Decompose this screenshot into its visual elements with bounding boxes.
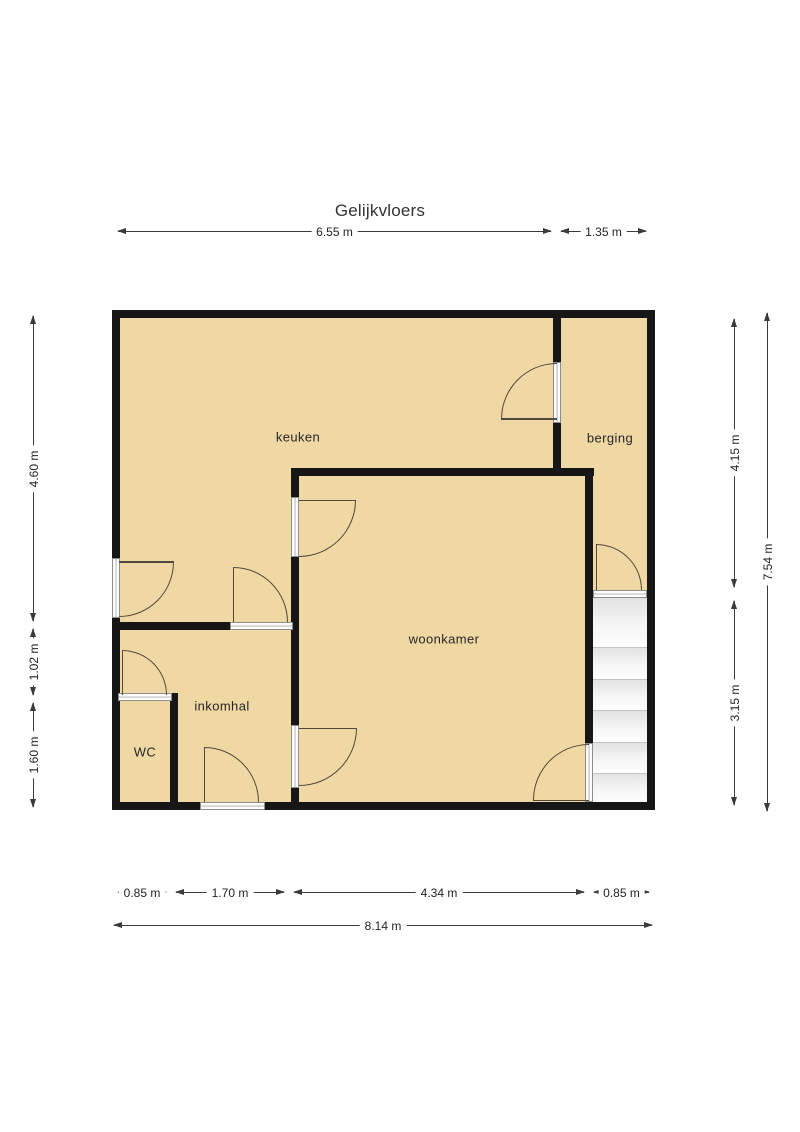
arrow-down-icon xyxy=(764,803,770,812)
dimension-label: 0.85 m xyxy=(598,886,645,900)
dimension-left-keuken: 4.60 m xyxy=(30,315,37,622)
stair-step xyxy=(593,773,647,802)
arrow-right-icon xyxy=(576,889,585,895)
arrow-left-icon xyxy=(293,889,302,895)
door-jamb-keuken-inkomhal xyxy=(230,622,293,630)
dimension-label: 6.55 m xyxy=(311,225,358,239)
arrow-down-icon xyxy=(30,613,36,622)
page-title: Gelijkvloers xyxy=(260,201,500,221)
wall-woonkamer-left-lower xyxy=(291,788,299,802)
arrow-up-icon xyxy=(30,702,36,711)
dimension-right-lower: 3.15 m xyxy=(731,600,738,806)
arrow-right-icon xyxy=(638,228,647,234)
arrow-down-icon xyxy=(30,687,36,696)
arrow-left-icon xyxy=(117,228,126,234)
arrow-up-icon xyxy=(764,312,770,321)
arrow-right-icon xyxy=(276,889,285,895)
arrow-right-icon xyxy=(543,228,552,234)
dimension-top-keuken: 6.55 m xyxy=(117,228,552,235)
wall-outer-bottom-left xyxy=(112,802,200,810)
wall-woonkamer-left-upper xyxy=(291,476,299,497)
wall-wc-right xyxy=(170,701,178,802)
wall-outer-bottom-right xyxy=(265,802,655,810)
dimension-bottom-woonkamer: 4.34 m xyxy=(293,889,585,896)
wall-outer-left-upper xyxy=(112,310,120,558)
stair-step xyxy=(593,710,647,742)
dimension-label: 8.14 m xyxy=(360,919,407,933)
dimension-label: 1.02 m xyxy=(27,639,41,686)
arrow-left-icon xyxy=(560,228,569,234)
dimension-label: 4.15 m xyxy=(728,430,742,477)
arrow-up-icon xyxy=(731,600,737,609)
door-jamb-entrance xyxy=(200,802,265,810)
floorplan-page: Gelijkvloers 6.55 m 1.35 m xyxy=(0,0,800,1132)
wall-keuken-inkomhal xyxy=(112,622,230,630)
dimension-bottom-inkomhal: 1.70 m xyxy=(175,889,285,896)
arrow-down-icon xyxy=(731,797,737,806)
dimension-label: 4.60 m xyxy=(27,445,41,492)
room-label-inkomhal: inkomhal xyxy=(194,699,249,714)
dimension-bottom-wc: 0.85 m xyxy=(117,889,167,896)
stair-step xyxy=(593,598,647,647)
wall-keuken-berging-upper xyxy=(553,310,561,362)
dimension-top-berging: 1.35 m xyxy=(560,228,647,235)
wall-keuken-berging-lower xyxy=(553,423,561,472)
wall-woonkamer-left-middle xyxy=(291,557,299,725)
dimension-right-total: 7.54 m xyxy=(764,312,771,812)
arrow-up-icon xyxy=(731,318,737,327)
arrow-down-icon xyxy=(30,799,36,808)
wall-woonkamer-right xyxy=(585,476,593,743)
stair-step xyxy=(593,679,647,710)
stair-step xyxy=(593,647,647,679)
wall-outer-left-lower xyxy=(112,618,120,810)
arrow-right-icon xyxy=(644,922,653,928)
dimension-label: 1.60 m xyxy=(27,732,41,779)
door-jamb-stairs xyxy=(593,590,647,598)
room-label-berging: berging xyxy=(587,431,633,446)
arrow-left-icon xyxy=(113,922,122,928)
arrow-up-icon xyxy=(30,315,36,324)
dimension-bottom-stairs: 0.85 m xyxy=(593,889,650,896)
dimension-label: 7.54 m xyxy=(761,539,775,586)
arrow-left-icon xyxy=(175,889,184,895)
room-label-keuken: keuken xyxy=(276,430,320,445)
dimension-left-wc: 1.60 m xyxy=(30,702,37,808)
dimension-label: 1.35 m xyxy=(580,225,627,239)
door-jamb-keuken-woonkamer xyxy=(291,497,299,557)
arrow-up-icon xyxy=(30,628,36,637)
wall-outer-right xyxy=(647,310,655,810)
wall-wc-top-right xyxy=(172,693,178,701)
dimension-label: 1.70 m xyxy=(207,886,254,900)
door-jamb-inkomhal-woonkamer xyxy=(291,725,299,788)
wall-woonkamer-top xyxy=(291,468,594,476)
floor-area xyxy=(116,314,651,806)
dimension-left-inkomhal: 1.02 m xyxy=(30,628,37,696)
dimension-bottom-total: 8.14 m xyxy=(113,922,653,929)
dimension-right-upper: 4.15 m xyxy=(731,318,738,588)
staircase xyxy=(593,598,647,802)
dimension-label: 0.85 m xyxy=(119,886,166,900)
room-label-woonkamer: woonkamer xyxy=(409,632,480,647)
stair-step xyxy=(593,742,647,773)
arrow-down-icon xyxy=(731,579,737,588)
dimension-label: 4.34 m xyxy=(416,886,463,900)
room-label-wc: WC xyxy=(134,745,156,760)
wall-outer-top xyxy=(112,310,655,318)
dimension-label: 3.15 m xyxy=(728,680,742,727)
